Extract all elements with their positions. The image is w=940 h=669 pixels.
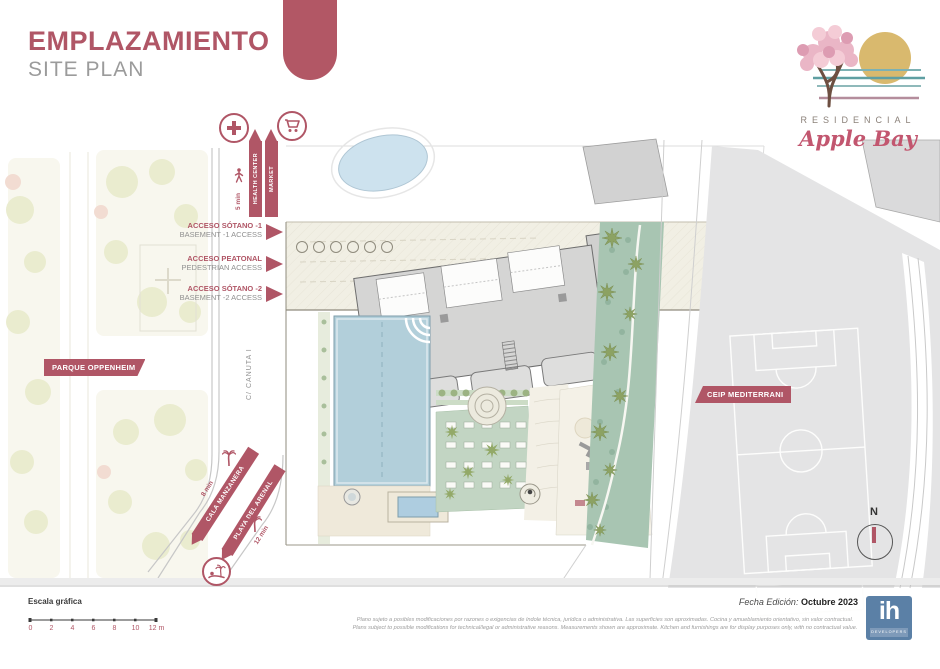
developer-logo: ih DEVELOPERS (866, 596, 912, 640)
park-ribbon: PARQUE OPPENHEIM (44, 359, 145, 376)
scale-bar (28, 612, 178, 626)
health-center-label: HEALTH CENTER (253, 153, 259, 204)
page-subtitle: SITE PLAN (28, 59, 270, 80)
scale-tick: 2 (41, 625, 62, 632)
access-1-en: BASEMENT -1 ACCESS (158, 230, 262, 239)
palm-tree-icon (222, 450, 236, 472)
scale-numbers: 0 2 4 6 8 10 12 m (20, 625, 167, 632)
scale-tick: 8 (104, 625, 125, 632)
access-3-es: ACCESO SÓTANO -2 (158, 284, 262, 293)
compass-needle (872, 527, 876, 543)
disclaimer-en: Plans subject to possible modifications … (345, 624, 865, 632)
walk-time-top: 5 min (235, 184, 242, 210)
brand-residencial: RESIDENCIAL (783, 115, 933, 125)
disclaimer-es: Plano sujeto a posibles modificaciones p… (345, 616, 865, 624)
access-3-en: BASEMENT -2 ACCESS (158, 293, 262, 302)
access-2-arrow (266, 256, 283, 272)
scale-tick: 4 (62, 625, 83, 632)
compass-north-label: N (866, 506, 882, 518)
school-ribbon: CEIP MEDITERRANI (695, 386, 791, 403)
access-3-arrow (266, 286, 283, 302)
access-2-es: ACCESO PEATONAL (158, 254, 262, 263)
brand-logo: RESIDENCIAL Apple Bay (783, 20, 933, 145)
market-label: MARKET (269, 166, 275, 192)
page-title: EMPLAZAMIENTO (28, 28, 270, 55)
neighbour-plot (286, 119, 764, 222)
edition-date: Fecha Edición: Octubre 2023 (560, 597, 858, 607)
access-1-arrow (266, 224, 283, 240)
pool-zone (318, 312, 448, 544)
health-center-bar: HEALTH CENTER (249, 141, 262, 217)
palm-tree-icon (248, 516, 262, 538)
market-arrow-tip (265, 129, 277, 141)
header-pill-decoration (283, 0, 337, 80)
sun-icon (859, 32, 911, 84)
edition-value: Octubre 2023 (801, 597, 858, 607)
market-bar: MARKET (265, 141, 278, 217)
scale-tick: 10 (125, 625, 146, 632)
developer-logo-sub: DEVELOPERS (870, 628, 908, 637)
site-plan-page: { "colors": { "brand_maroon": "#b05666",… (0, 0, 940, 669)
brand-logo-art (783, 20, 933, 108)
beach-icon (202, 557, 231, 586)
scale-tick: 12 m (146, 625, 167, 632)
health-arrow-tip (249, 129, 261, 141)
access-2-en: PEDESTRIAN ACCESS (158, 263, 262, 272)
disclaimer: Plano sujeto a posibles modificaciones p… (345, 616, 865, 632)
scale-tick: 0 (20, 625, 41, 632)
access-pedestrian: ACCESO PEATONAL PEDESTRIAN ACCESS (158, 254, 262, 272)
developer-logo-text: ih (866, 596, 912, 626)
access-1-es: ACCESO SÓTANO -1 (158, 221, 262, 230)
scale-tick: 6 (83, 625, 104, 632)
page-title-block: EMPLAZAMIENTO SITE PLAN (28, 28, 270, 80)
health-center-icon (219, 113, 249, 143)
blossom-tree-icon (797, 25, 858, 106)
access-basement-1: ACCESO SÓTANO -1 BASEMENT -1 ACCESS (158, 221, 262, 239)
street-label: C/ CANUTA I (246, 328, 253, 400)
access-basement-2: ACCESO SÓTANO -2 BASEMENT -2 ACCESS (158, 284, 262, 302)
brand-name: Apple Bay (783, 126, 933, 151)
market-cart-icon (277, 111, 307, 141)
scale-title: Escala gráfica (28, 597, 82, 606)
edition-label: Fecha Edición: (739, 597, 799, 607)
